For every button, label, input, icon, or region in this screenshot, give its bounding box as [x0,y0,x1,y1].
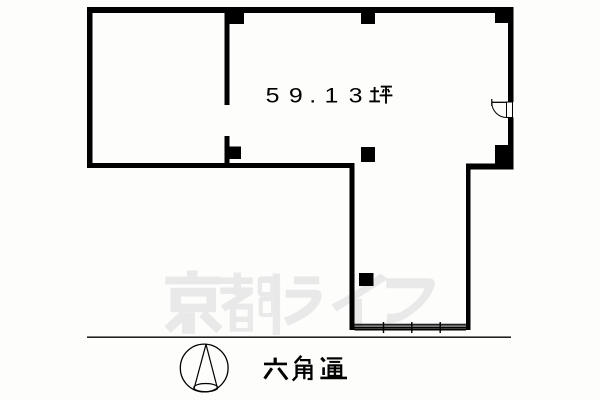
svg-text:9: 9 [289,83,303,107]
svg-text:1: 1 [325,83,339,107]
svg-text:.: . [309,83,316,107]
svg-text:3: 3 [349,83,363,107]
svg-text:5: 5 [266,83,280,107]
